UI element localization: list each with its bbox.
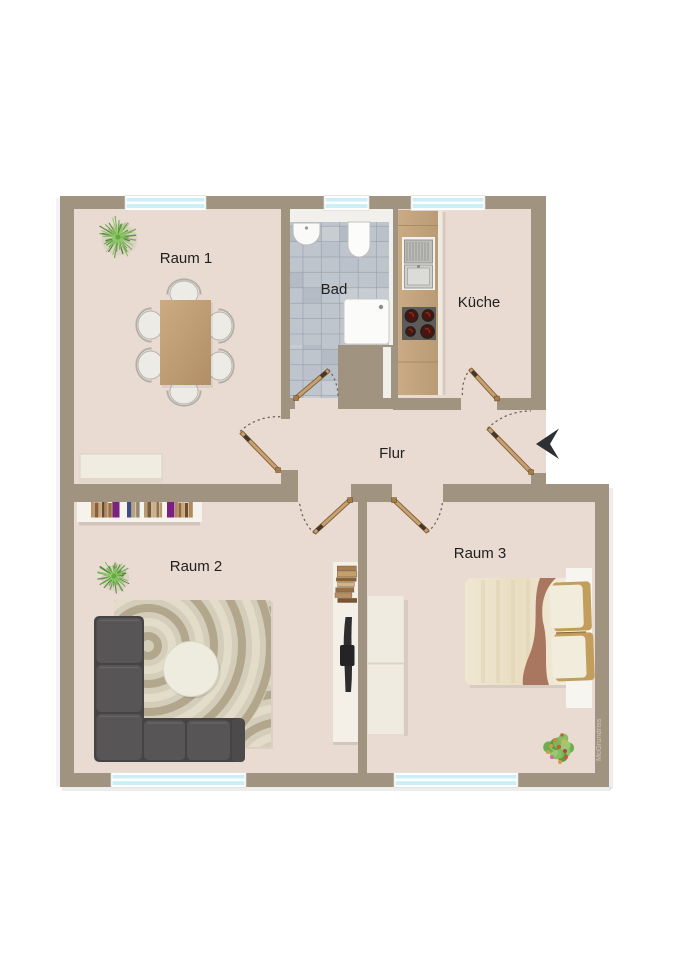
svg-text:Raum 2: Raum 2: [170, 558, 223, 575]
svg-text:Bad: Bad: [321, 281, 348, 298]
svg-text:Raum 3: Raum 3: [454, 545, 507, 562]
svg-text:Raum 1: Raum 1: [160, 250, 213, 267]
svg-text:McGrundriss: McGrundriss: [594, 718, 603, 761]
svg-text:Flur: Flur: [379, 445, 405, 462]
svg-text:Küche: Küche: [458, 294, 501, 311]
